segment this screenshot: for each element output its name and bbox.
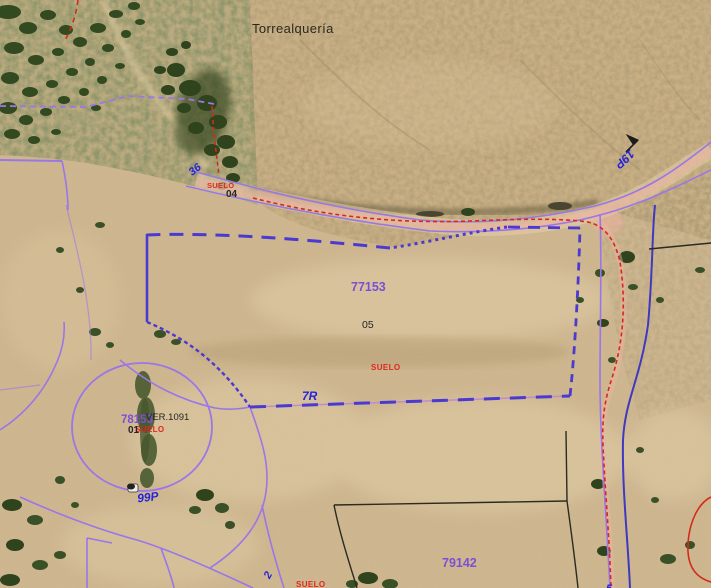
cadastral-map-canvas[interactable]: Torrealquería 36 SUELO 04 19P 77153 05 S… bbox=[0, 0, 711, 588]
suelo-center-label: SUELO bbox=[371, 363, 401, 372]
cadastral-map-viewport[interactable]: Torrealquería 36 SUELO 04 19P 77153 05 S… bbox=[0, 0, 711, 588]
suelo-left-label: SUELO bbox=[135, 425, 165, 434]
road-99p-label: 99P bbox=[136, 489, 160, 506]
parcel-79142-label[interactable]: 79142 bbox=[442, 556, 477, 570]
parcel-77153-label[interactable]: 77153 bbox=[351, 280, 386, 294]
road-7r-label: 7R bbox=[302, 389, 318, 403]
left-horizontal-line bbox=[0, 160, 62, 161]
suelo-bottom-label: SUELO bbox=[296, 580, 326, 588]
subparcel-01-label: 01 bbox=[128, 425, 140, 436]
subparcel-05-label: 05 bbox=[362, 319, 374, 331]
partial-5-label: 5 bbox=[606, 583, 613, 588]
place-name-label: Torrealquería bbox=[252, 21, 334, 36]
ver-1091-label: VER.1091 bbox=[146, 412, 189, 423]
black-parcel-vertical bbox=[566, 431, 567, 501]
subparcel-04-label: 04 bbox=[226, 189, 238, 200]
